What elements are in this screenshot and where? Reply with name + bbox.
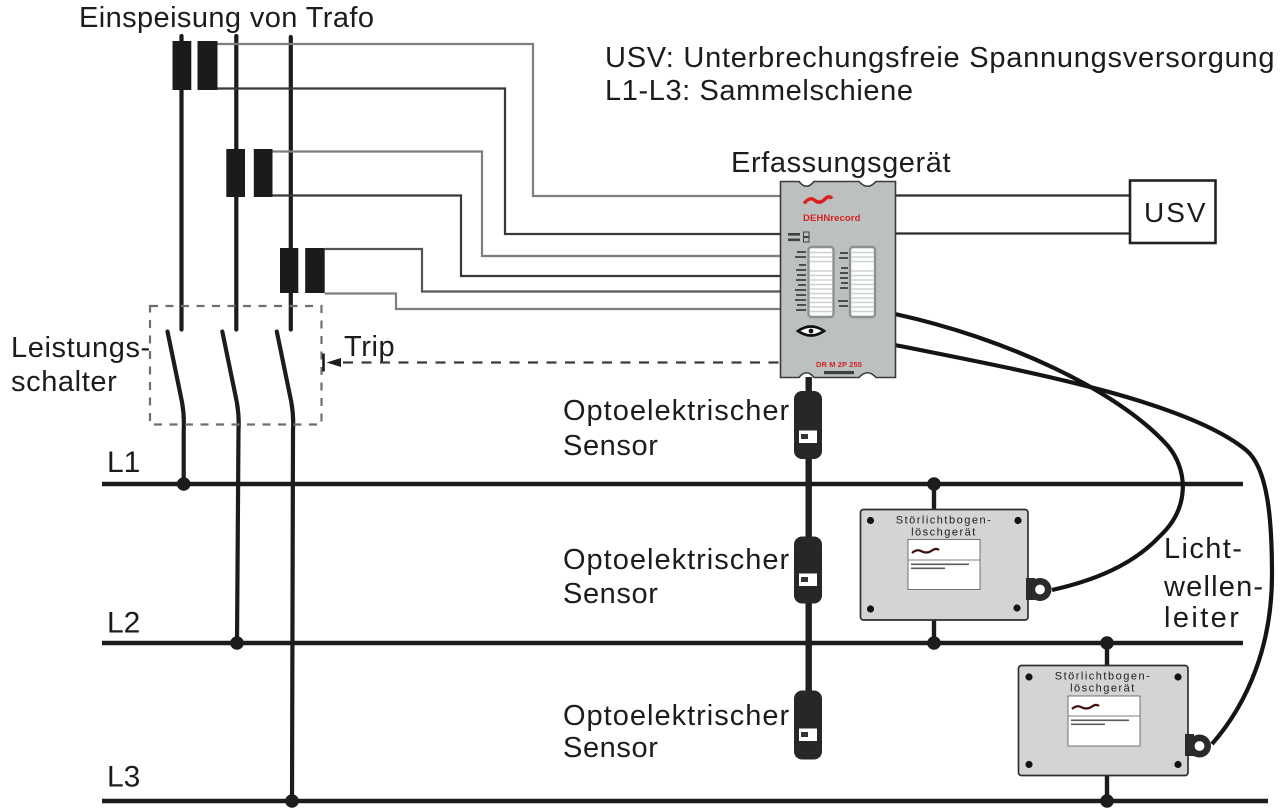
- svg-text:schalter: schalter: [11, 366, 117, 398]
- svg-text:Optoelektrischer: Optoelektrischer: [563, 544, 790, 576]
- svg-text:Sensor: Sensor: [563, 732, 659, 764]
- svg-text:Sensor: Sensor: [563, 430, 659, 462]
- svg-text:Trip: Trip: [344, 331, 395, 363]
- svg-text:Störlichtbogen-: Störlichtbogen-: [896, 515, 993, 527]
- svg-text:USV: Unterbrechungsfreie Spann: USV: Unterbrechungsfreie Spannungsversor…: [605, 42, 1275, 74]
- svg-text:Sensor: Sensor: [563, 578, 659, 610]
- svg-text:Optoelektrischer: Optoelektrischer: [563, 700, 790, 732]
- svg-text:löschgerät: löschgerät: [1070, 683, 1136, 695]
- svg-text:wellen-: wellen-: [1163, 571, 1264, 603]
- svg-text:löschgerät: löschgerät: [911, 527, 977, 539]
- svg-text:Optoelektrischer: Optoelektrischer: [563, 395, 790, 427]
- svg-text:L1: L1: [107, 446, 140, 479]
- svg-text:L3: L3: [107, 761, 140, 794]
- svg-text:L1-L3: Sammelschiene: L1-L3: Sammelschiene: [605, 75, 914, 107]
- svg-text:Störlichtbogen-: Störlichtbogen-: [1055, 671, 1152, 683]
- svg-text:DEHNrecord: DEHNrecord: [803, 213, 861, 224]
- svg-text:DR M 2P 255: DR M 2P 255: [816, 360, 862, 369]
- svg-text:leiter: leiter: [1164, 602, 1241, 634]
- svg-text:Licht-: Licht-: [1164, 533, 1243, 565]
- svg-text:Einspeisung von Trafo: Einspeisung von Trafo: [79, 2, 374, 34]
- svg-text:USV: USV: [1144, 197, 1208, 228]
- svg-text:L2: L2: [107, 607, 140, 640]
- svg-text:Leistungs-: Leistungs-: [11, 332, 151, 364]
- svg-text:Erfassungsgerät: Erfassungsgerät: [731, 147, 951, 179]
